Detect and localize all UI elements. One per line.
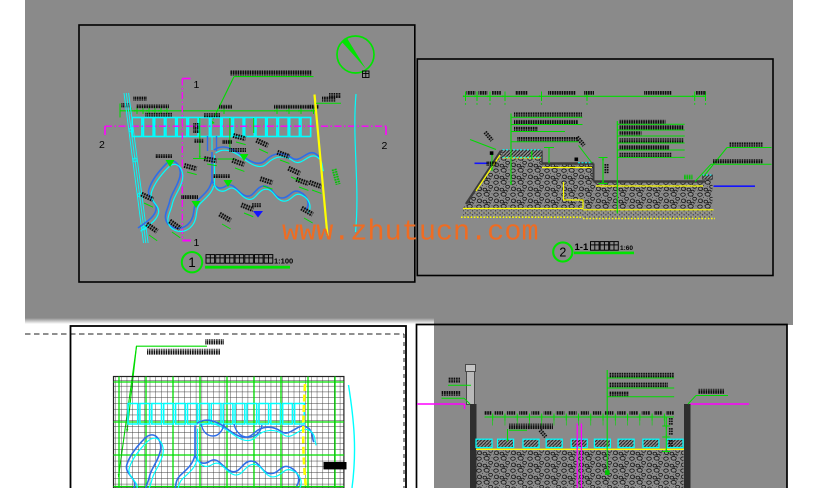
svg-text:1:100: 1:100 bbox=[274, 257, 293, 266]
svg-text:1: 1 bbox=[188, 255, 196, 270]
svg-text:1:60: 1:60 bbox=[620, 245, 633, 252]
svg-text:2: 2 bbox=[559, 246, 566, 260]
svg-text:2: 2 bbox=[99, 139, 105, 151]
svg-text:www.zhutucn.com: www.zhutucn.com bbox=[282, 216, 539, 249]
svg-text:1-1: 1-1 bbox=[575, 242, 589, 253]
svg-text:2: 2 bbox=[382, 140, 388, 152]
svg-text:1: 1 bbox=[194, 237, 200, 249]
svg-text:1: 1 bbox=[194, 79, 200, 91]
